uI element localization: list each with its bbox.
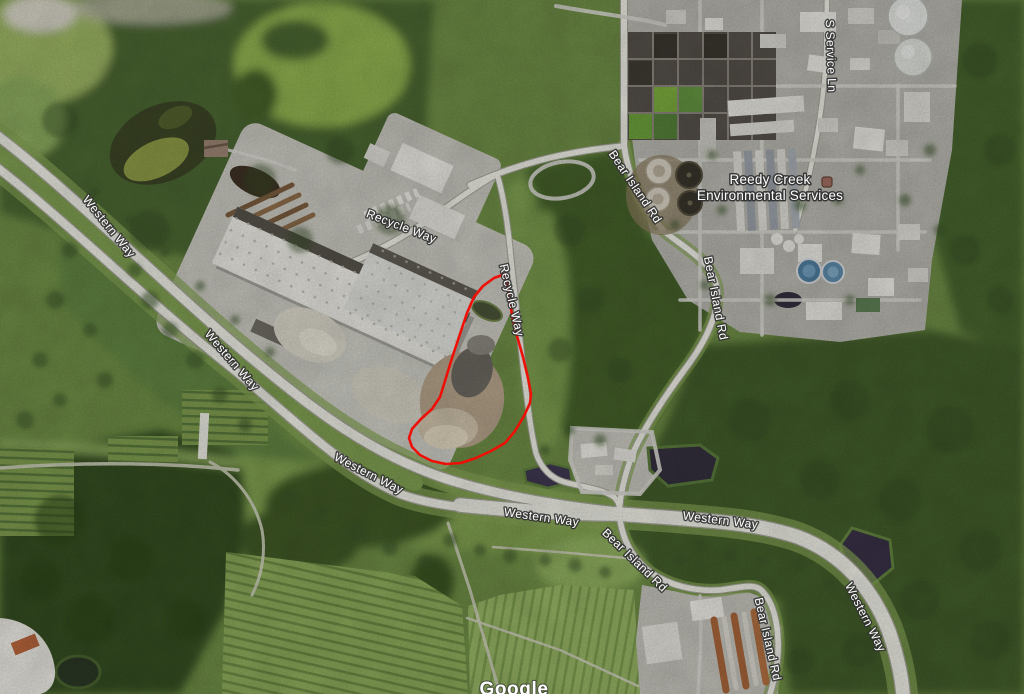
road-label-s-service-ln: S Service Ln bbox=[823, 19, 840, 92]
poi-label-line1[interactable]: Reedy Creek bbox=[730, 172, 811, 187]
google-watermark[interactable]: Google bbox=[479, 679, 548, 694]
map-canvas[interactable]: Western Way Western Way Western Way West… bbox=[0, 0, 1024, 694]
texture-mottle bbox=[0, 0, 1024, 694]
poi-label-line2[interactable]: Environmental Services bbox=[697, 188, 843, 203]
poi-marker[interactable] bbox=[822, 177, 832, 187]
